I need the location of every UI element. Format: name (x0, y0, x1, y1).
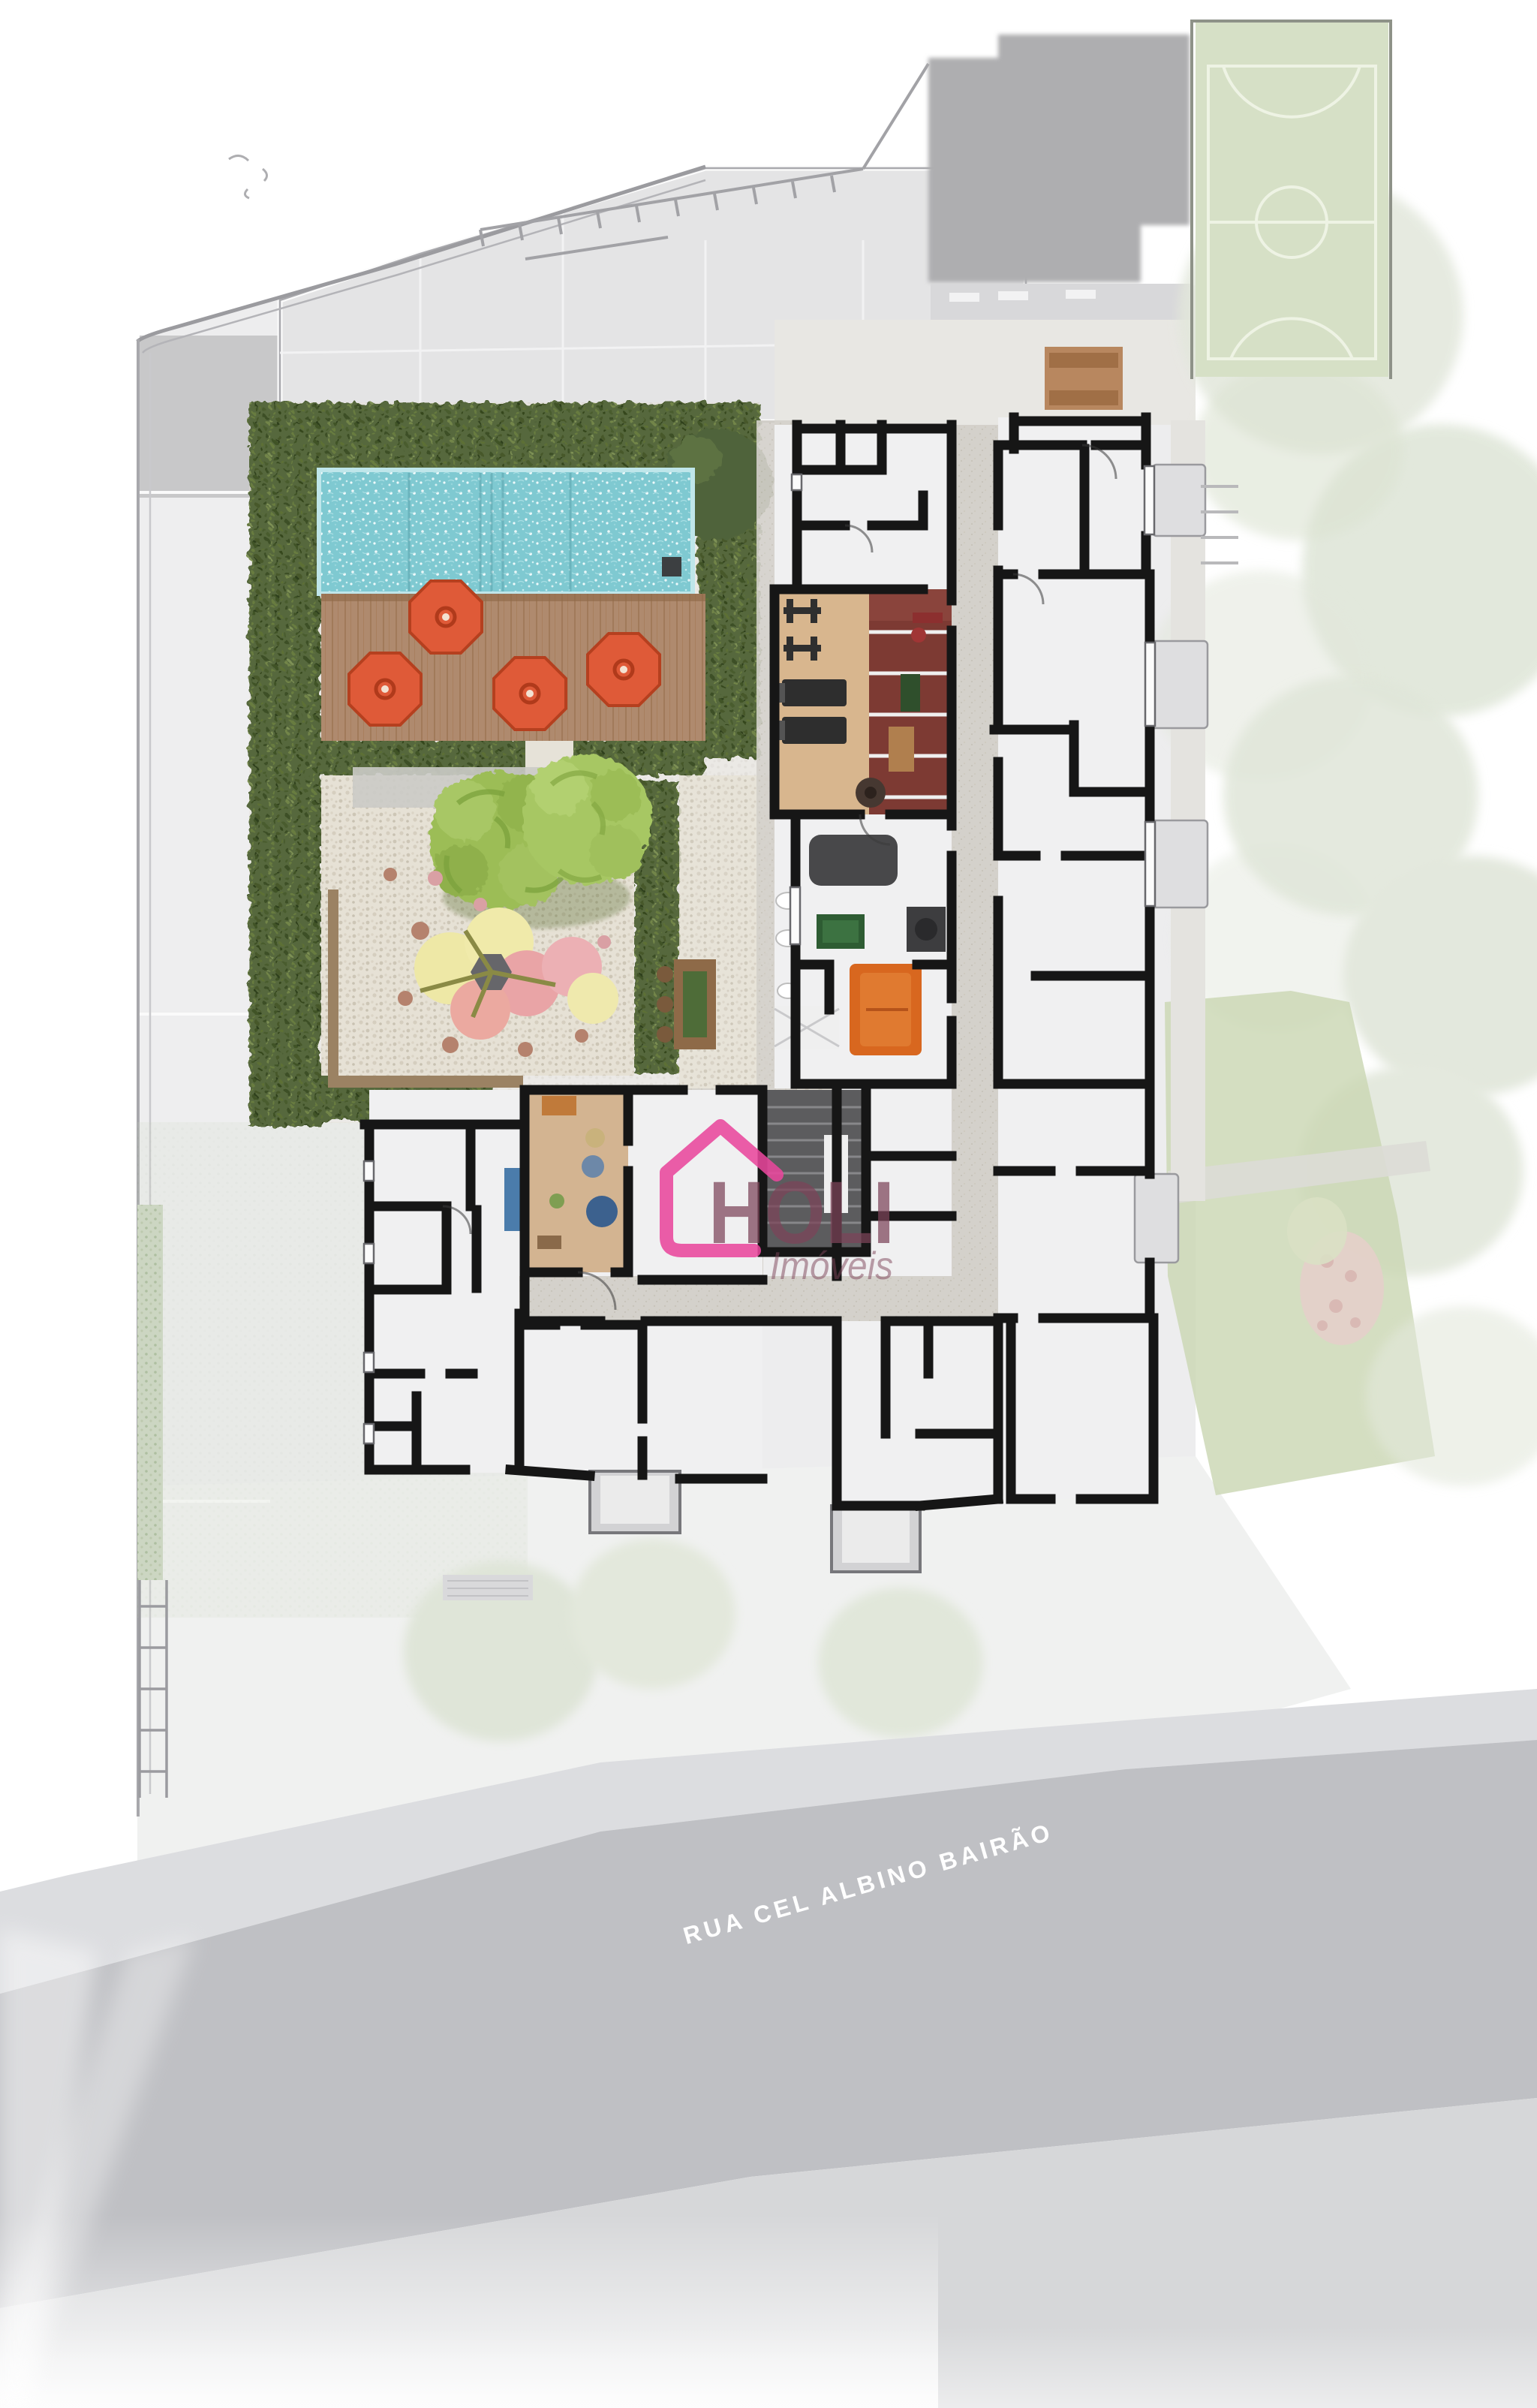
svg-text:Imóveis: Imóveis (770, 1245, 893, 1288)
